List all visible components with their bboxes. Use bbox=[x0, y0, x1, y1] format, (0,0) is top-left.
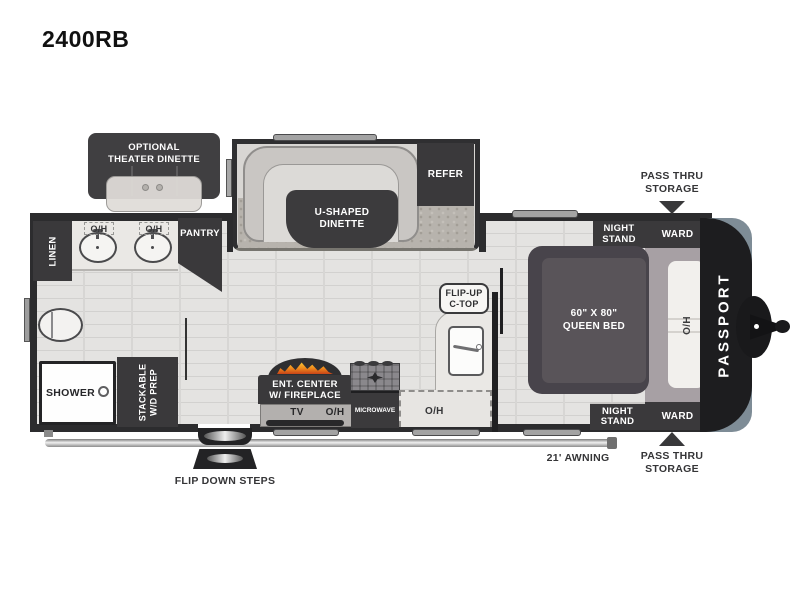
pass-thru-storage-bottom-label: PASS THRU STORAGE bbox=[622, 450, 722, 476]
stackable-label-line2: W/D PREP bbox=[148, 369, 158, 416]
stove-burner bbox=[382, 361, 393, 366]
theater-label-line2: THEATER DINETTE bbox=[108, 154, 200, 165]
flip-down-steps-label: FLIP DOWN STEPS bbox=[160, 475, 290, 487]
window-bottom-kitchen bbox=[412, 429, 480, 436]
dinette-table: U-SHAPED DINETTE bbox=[286, 190, 398, 248]
theater-dinette-table bbox=[106, 176, 202, 212]
overhead-cabinet-right: O/H bbox=[139, 222, 169, 235]
stackable-wd-prep: STACKABLE W/D PREP bbox=[117, 357, 178, 427]
pass-thru-bottom-line2: STORAGE bbox=[645, 463, 699, 475]
step-tread bbox=[204, 431, 246, 441]
stackable-label-line1: STACKABLE bbox=[137, 363, 147, 421]
ent-center-label-line2: W/ FIREPLACE bbox=[269, 390, 341, 401]
bedroom-wall bbox=[492, 292, 498, 432]
pass-thru-bottom-line1: PASS THRU bbox=[641, 450, 704, 462]
window-bottom-bedroom bbox=[523, 429, 581, 436]
pass-thru-top-line1: PASS THRU bbox=[641, 170, 704, 182]
ward-bottom-label: WARD bbox=[662, 411, 694, 422]
theater-label-line1: OPTIONAL bbox=[128, 142, 179, 153]
oh-tv-label: O/H bbox=[321, 407, 349, 418]
flip-up-label-line1: FLIP-UP bbox=[445, 288, 482, 298]
sink-drain-dot bbox=[96, 246, 99, 249]
slideout-side-window bbox=[226, 159, 232, 197]
overhead-cabinet-left: O/H bbox=[84, 222, 114, 235]
flip-up-label-line2: C-TOP bbox=[449, 299, 478, 309]
flip-up-countertop: FLIP-UP C-TOP bbox=[439, 283, 489, 314]
bed-label-line1: 60" X 80" bbox=[571, 308, 618, 319]
oh-counter-label: O/H bbox=[425, 406, 444, 417]
night-stand-bottom-line1: NIGHT bbox=[602, 406, 633, 417]
floorplan-canvas: 2400RB OPTIONAL THEATER DINETTE U-SHAPED… bbox=[0, 0, 800, 600]
hitch-jack-dot bbox=[754, 324, 759, 329]
bath-partition-wall bbox=[185, 318, 187, 380]
tv-icon bbox=[266, 420, 344, 426]
refrigerator: REFER bbox=[417, 143, 474, 206]
bed-overhead: O/H bbox=[672, 310, 702, 340]
entertainment-center: ENT. CENTER W/ FIREPLACE bbox=[258, 375, 352, 404]
shower-label: SHOWER bbox=[46, 387, 95, 399]
brand-logo: PASSPORT bbox=[716, 272, 733, 377]
linen-cabinet: LINEN bbox=[33, 221, 72, 281]
slideout-window bbox=[273, 134, 377, 141]
sink-drain-dot bbox=[151, 246, 154, 249]
awning-bar bbox=[45, 439, 611, 447]
night-stand-bottom: NIGHT STAND bbox=[590, 402, 645, 430]
hitch-coupler-ball bbox=[775, 320, 790, 333]
pantry-label: PANTRY bbox=[178, 228, 222, 239]
arrow-up-icon bbox=[659, 432, 685, 446]
theater-dinette-label: OPTIONAL THEATER DINETTE bbox=[88, 142, 220, 165]
refer-label: REFER bbox=[428, 169, 463, 180]
cup-holder bbox=[156, 184, 163, 191]
window-bottom-galley bbox=[273, 429, 339, 436]
stove-burner bbox=[368, 361, 379, 366]
toilet-tank-line bbox=[51, 312, 53, 338]
stove-burner bbox=[354, 361, 365, 366]
window-rear-left bbox=[24, 298, 30, 342]
night-stand-top: NIGHT STAND bbox=[593, 221, 645, 248]
dinette-label-line2: DINETTE bbox=[320, 219, 365, 230]
dinette-label-line1: U-SHAPED bbox=[315, 207, 370, 218]
microwave-label: MICROWAVE bbox=[355, 407, 395, 414]
cup-holder bbox=[142, 184, 149, 191]
linen-label: LINEN bbox=[47, 236, 58, 266]
kitchen-overhead-area: O/H bbox=[399, 390, 492, 427]
awning-end-cap bbox=[607, 437, 617, 449]
kitchen-faucet-icon bbox=[476, 344, 482, 350]
bedroom-wall-upper bbox=[500, 268, 503, 334]
step-tread bbox=[207, 454, 243, 463]
night-stand-top-line2: STAND bbox=[602, 234, 636, 245]
wall-slide-return-right bbox=[479, 213, 486, 252]
pass-thru-storage-top-label: PASS THRU STORAGE bbox=[622, 170, 722, 196]
tv-label: TV bbox=[282, 407, 312, 418]
awning-mount bbox=[44, 430, 53, 437]
night-stand-top-line1: NIGHT bbox=[603, 223, 634, 234]
oh-left-label: O/H bbox=[91, 224, 108, 234]
wall-slide-return-left bbox=[227, 213, 233, 252]
pass-thru-top-line2: STORAGE bbox=[645, 183, 699, 195]
page-title: 2400RB bbox=[42, 26, 129, 53]
microwave: MICROWAVE bbox=[351, 391, 399, 428]
window-top bbox=[512, 210, 578, 218]
awning-label: 21' AWNING bbox=[532, 452, 624, 464]
queen-bed-mattress: 60" X 80" QUEEN BED bbox=[542, 258, 646, 383]
ent-center-label-line1: ENT. CENTER bbox=[272, 379, 338, 390]
bed-label-line2: QUEEN BED bbox=[563, 321, 625, 332]
shower-drain-icon bbox=[98, 386, 109, 397]
night-stand-bottom-line2: STAND bbox=[601, 416, 635, 427]
oh-right-label: O/H bbox=[146, 224, 163, 234]
oh-bed-label: O/H bbox=[682, 316, 693, 335]
toilet bbox=[38, 308, 83, 342]
ward-top-label: WARD bbox=[662, 229, 694, 240]
